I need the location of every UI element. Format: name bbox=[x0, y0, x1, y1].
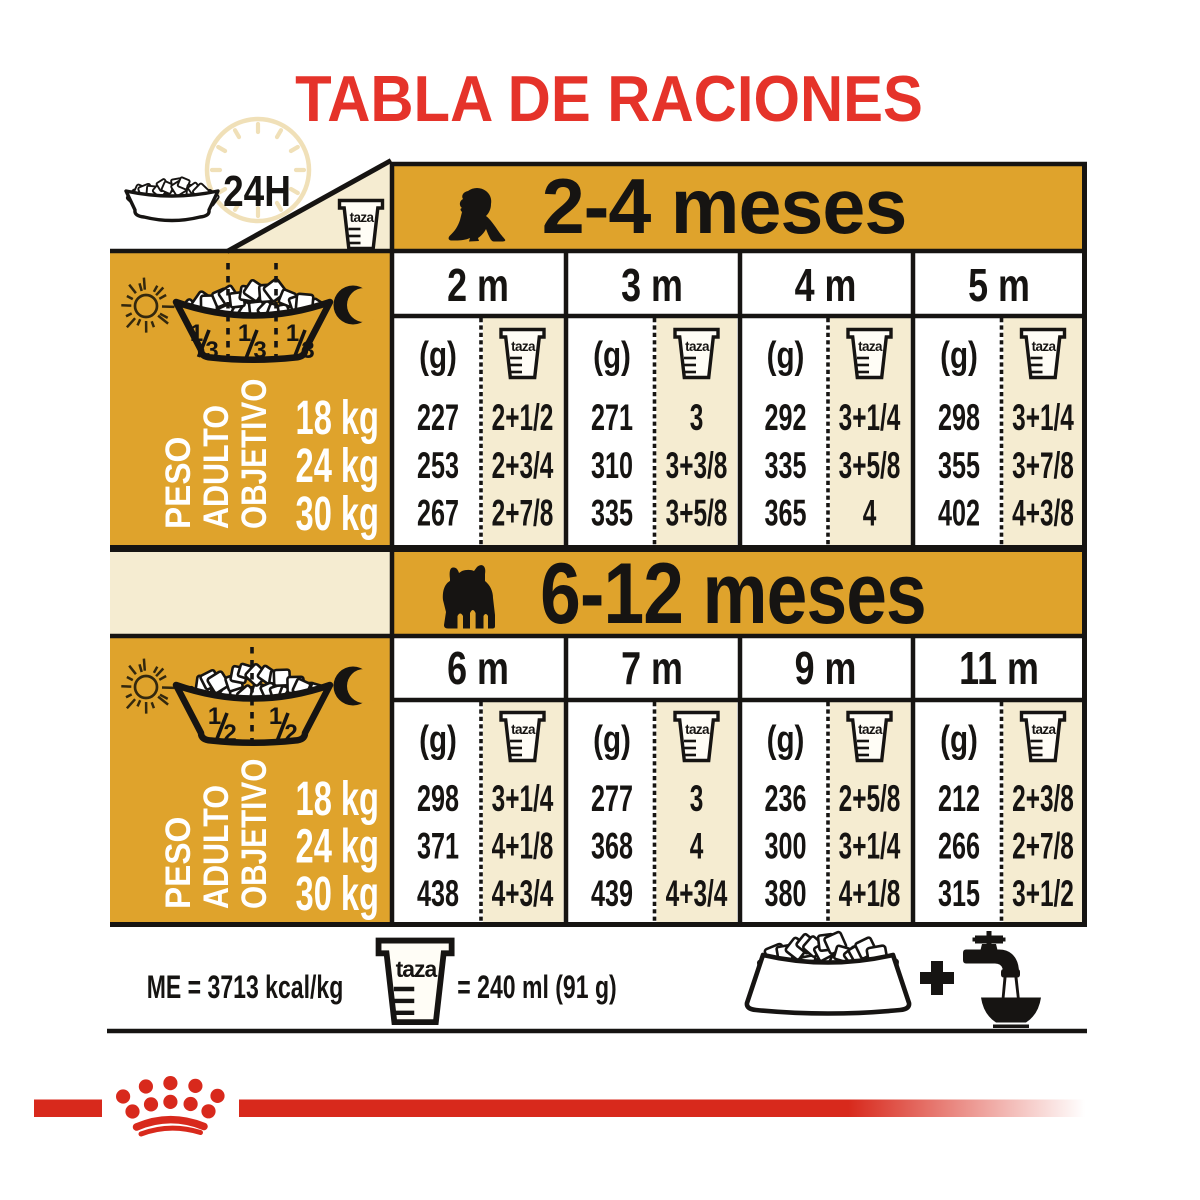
svg-text:(g): (g) bbox=[593, 719, 631, 761]
svg-text:4+3/4: 4+3/4 bbox=[492, 873, 554, 914]
svg-text:1: 1 bbox=[190, 320, 203, 347]
svg-text:OBJETIVO: OBJETIVO bbox=[235, 379, 274, 529]
svg-text:2: 2 bbox=[284, 720, 297, 747]
svg-text:2+7/8: 2+7/8 bbox=[492, 492, 554, 533]
svg-text:277: 277 bbox=[591, 777, 633, 819]
svg-text:3 m: 3 m bbox=[621, 260, 683, 311]
svg-text:402: 402 bbox=[938, 492, 980, 534]
svg-text:(g): (g) bbox=[940, 335, 978, 377]
svg-text:(g): (g) bbox=[593, 335, 631, 377]
svg-text:266: 266 bbox=[938, 825, 980, 867]
svg-text:4+3/8: 4+3/8 bbox=[1012, 492, 1074, 533]
svg-text:PESO: PESO bbox=[159, 817, 198, 909]
svg-text:439: 439 bbox=[591, 872, 633, 914]
svg-text:taza: taza bbox=[350, 210, 375, 225]
svg-text:3+5/8: 3+5/8 bbox=[839, 445, 901, 486]
svg-text:= 240 ml (91 g): = 240 ml (91 g) bbox=[457, 969, 616, 1005]
svg-text:227: 227 bbox=[417, 396, 459, 438]
svg-text:3+1/4: 3+1/4 bbox=[492, 778, 554, 819]
svg-text:OBJETIVO: OBJETIVO bbox=[235, 759, 274, 909]
svg-text:taza: taza bbox=[858, 722, 883, 737]
svg-text:253: 253 bbox=[417, 444, 459, 486]
svg-text:371: 371 bbox=[417, 825, 459, 867]
svg-text:212: 212 bbox=[938, 777, 980, 819]
svg-text:380: 380 bbox=[765, 872, 807, 914]
svg-text:2+3/4: 2+3/4 bbox=[492, 445, 554, 486]
svg-text:ADULTO: ADULTO bbox=[196, 785, 235, 909]
svg-text:3+1/4: 3+1/4 bbox=[839, 825, 901, 866]
svg-text:9 m: 9 m bbox=[795, 643, 857, 694]
svg-text:3: 3 bbox=[301, 337, 314, 364]
svg-text:6 m: 6 m bbox=[447, 643, 509, 694]
svg-text:30 kg: 30 kg bbox=[296, 487, 379, 541]
svg-text:2: 2 bbox=[223, 720, 236, 747]
svg-text:292: 292 bbox=[765, 396, 807, 438]
svg-text:3: 3 bbox=[253, 337, 266, 364]
svg-text:taza: taza bbox=[858, 339, 883, 354]
svg-text:6-12 meses: 6-12 meses bbox=[540, 545, 926, 641]
svg-text:4 m: 4 m bbox=[795, 260, 857, 311]
svg-text:2 m: 2 m bbox=[447, 260, 509, 311]
svg-text:267: 267 bbox=[417, 492, 459, 534]
svg-text:3+1/4: 3+1/4 bbox=[1012, 397, 1074, 438]
svg-text:4+1/8: 4+1/8 bbox=[839, 873, 901, 914]
svg-text:11 m: 11 m bbox=[959, 643, 1039, 694]
svg-text:1: 1 bbox=[238, 320, 251, 347]
svg-text:ME = 3713 kcal/kg: ME = 3713 kcal/kg bbox=[147, 969, 344, 1005]
svg-text:24H: 24H bbox=[223, 166, 291, 216]
svg-text:3+3/8: 3+3/8 bbox=[666, 445, 728, 486]
svg-text:355: 355 bbox=[938, 444, 980, 486]
svg-text:2+3/8: 2+3/8 bbox=[1012, 778, 1074, 819]
svg-text:TABLA DE RACIONES: TABLA DE RACIONES bbox=[295, 63, 923, 136]
svg-text:taza: taza bbox=[1032, 339, 1057, 354]
svg-text:3+7/8: 3+7/8 bbox=[1012, 445, 1074, 486]
svg-text:271: 271 bbox=[591, 396, 633, 438]
svg-text:4+3/4: 4+3/4 bbox=[666, 873, 728, 914]
svg-text:3+5/8: 3+5/8 bbox=[666, 492, 728, 533]
svg-text:3: 3 bbox=[690, 778, 704, 819]
svg-text:236: 236 bbox=[765, 777, 807, 819]
svg-text:2+1/2: 2+1/2 bbox=[492, 397, 554, 438]
svg-text:PESO: PESO bbox=[159, 437, 198, 529]
svg-text:3+1/4: 3+1/4 bbox=[839, 397, 901, 438]
svg-text:18 kg: 18 kg bbox=[296, 391, 379, 445]
svg-text:4+1/8: 4+1/8 bbox=[492, 825, 554, 866]
svg-text:ADULTO: ADULTO bbox=[196, 405, 235, 529]
svg-text:300: 300 bbox=[765, 825, 807, 867]
svg-text:365: 365 bbox=[765, 492, 807, 534]
svg-text:298: 298 bbox=[938, 396, 980, 438]
svg-text:taza: taza bbox=[685, 339, 710, 354]
svg-text:310: 310 bbox=[591, 444, 633, 486]
svg-text:3: 3 bbox=[690, 397, 704, 438]
svg-text:3: 3 bbox=[205, 337, 218, 364]
svg-text:1: 1 bbox=[208, 703, 221, 730]
svg-text:(g): (g) bbox=[940, 719, 978, 761]
svg-text:335: 335 bbox=[765, 444, 807, 486]
svg-text:2-4 meses: 2-4 meses bbox=[542, 164, 907, 250]
svg-text:2+5/8: 2+5/8 bbox=[839, 778, 901, 819]
svg-text:taza: taza bbox=[685, 722, 710, 737]
svg-text:1: 1 bbox=[286, 320, 299, 347]
svg-text:18 kg: 18 kg bbox=[296, 772, 379, 826]
svg-text:4: 4 bbox=[690, 825, 704, 866]
svg-text:24 kg: 24 kg bbox=[296, 439, 379, 493]
svg-text:(g): (g) bbox=[767, 335, 805, 377]
svg-text:4: 4 bbox=[863, 492, 877, 533]
svg-text:315: 315 bbox=[938, 872, 980, 914]
svg-text:2+7/8: 2+7/8 bbox=[1012, 825, 1074, 866]
svg-text:taza: taza bbox=[396, 956, 438, 982]
svg-text:335: 335 bbox=[591, 492, 633, 534]
svg-text:3+1/2: 3+1/2 bbox=[1012, 873, 1074, 914]
svg-text:368: 368 bbox=[591, 825, 633, 867]
svg-text:(g): (g) bbox=[767, 719, 805, 761]
svg-text:taza: taza bbox=[1032, 722, 1057, 737]
svg-text:30 kg: 30 kg bbox=[296, 867, 379, 921]
svg-text:(g): (g) bbox=[419, 335, 457, 377]
svg-text:taza: taza bbox=[511, 339, 536, 354]
svg-text:438: 438 bbox=[417, 872, 459, 914]
svg-text:1: 1 bbox=[269, 703, 282, 730]
svg-text:7 m: 7 m bbox=[621, 643, 683, 694]
svg-text:taza: taza bbox=[511, 722, 536, 737]
svg-text:298: 298 bbox=[417, 777, 459, 819]
svg-text:(g): (g) bbox=[419, 719, 457, 761]
svg-text:24 kg: 24 kg bbox=[296, 819, 379, 873]
svg-text:5 m: 5 m bbox=[968, 260, 1030, 311]
